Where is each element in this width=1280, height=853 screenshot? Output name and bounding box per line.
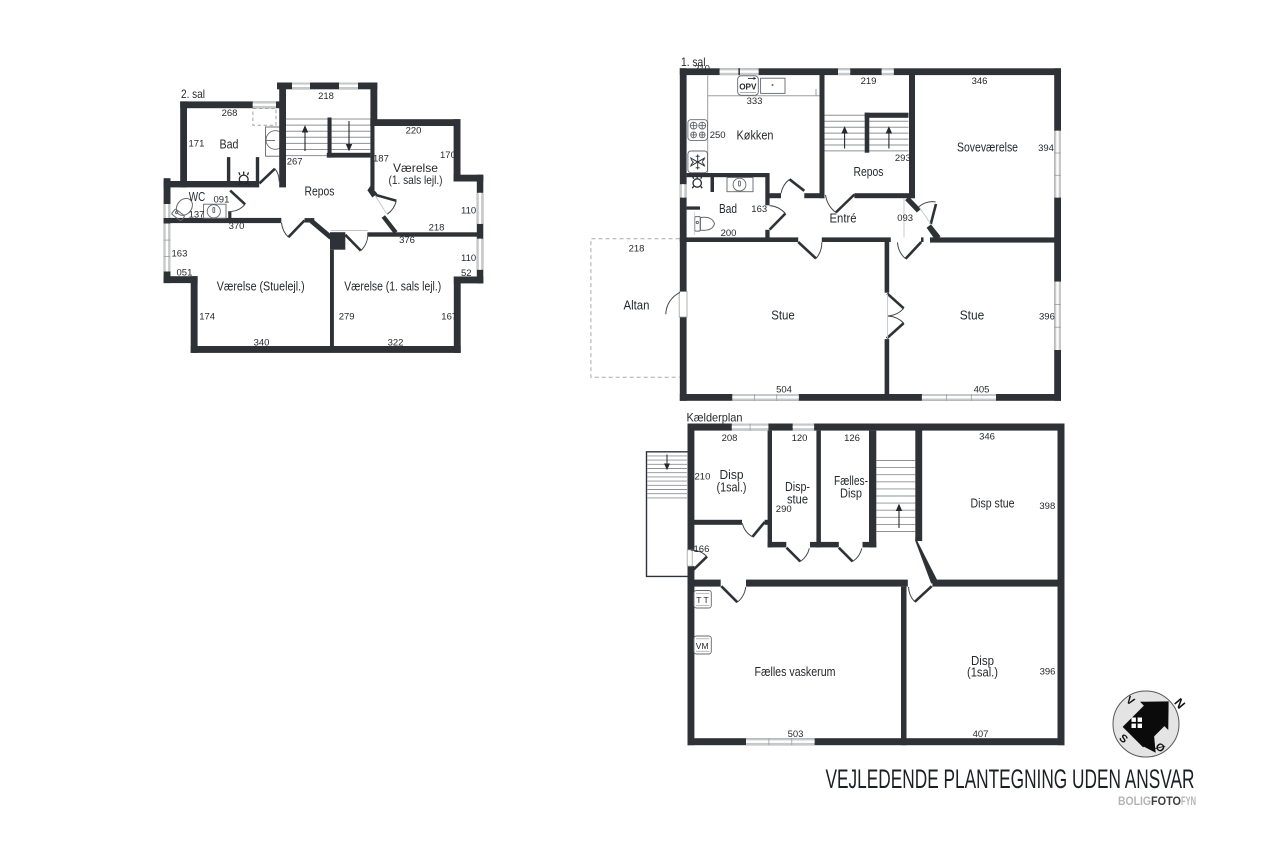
svg-text:346: 346	[979, 432, 995, 443]
svg-text:376: 376	[399, 235, 415, 246]
svg-text:051: 051	[177, 268, 193, 279]
svg-text:218: 218	[318, 91, 334, 102]
svg-text:346: 346	[972, 76, 988, 87]
svg-text:Kælderplan: Kælderplan	[687, 411, 743, 425]
svg-text:091: 091	[214, 195, 230, 206]
svg-text:340: 340	[254, 337, 270, 348]
svg-text:187: 187	[373, 153, 389, 164]
svg-text:Soveværelse: Soveværelse	[957, 140, 1018, 155]
svg-text:171: 171	[189, 139, 205, 150]
svg-text:Bad: Bad	[220, 137, 239, 152]
svg-text:2. sal: 2. sal	[181, 87, 205, 101]
svg-text:Repos: Repos	[854, 164, 884, 179]
svg-text:Disp: Disp	[840, 486, 862, 501]
svg-text:503: 503	[788, 729, 804, 740]
svg-text:322: 322	[388, 337, 404, 348]
svg-text:T T: T T	[696, 595, 708, 605]
svg-text:166: 166	[694, 544, 710, 555]
svg-text:163: 163	[172, 249, 188, 260]
svg-text:Fælles vaskerum: Fælles vaskerum	[755, 664, 836, 679]
svg-text:1. sal: 1. sal	[681, 55, 706, 69]
svg-text:407: 407	[973, 729, 989, 740]
svg-text:279: 279	[339, 311, 355, 322]
svg-text:293: 293	[895, 153, 911, 164]
svg-text:398: 398	[1039, 501, 1055, 512]
svg-text:219: 219	[861, 76, 877, 87]
svg-text:Stue: Stue	[960, 308, 985, 323]
svg-text:(1sal.): (1sal.)	[717, 480, 747, 495]
svg-text:Repos: Repos	[305, 184, 335, 199]
svg-text:Altan: Altan	[624, 298, 650, 313]
svg-text:170: 170	[440, 150, 456, 161]
svg-text:208: 208	[722, 433, 738, 444]
svg-text:220: 220	[406, 126, 422, 137]
svg-text:218: 218	[629, 244, 645, 255]
svg-text:Værelse (1. sals lejl.): Værelse (1. sals lejl.)	[344, 279, 441, 294]
svg-text:Køkken: Køkken	[737, 128, 774, 143]
svg-text:126: 126	[844, 433, 860, 444]
svg-text:290: 290	[776, 504, 792, 515]
svg-text:FYN: FYN	[1181, 794, 1196, 808]
svg-text:167: 167	[441, 311, 457, 322]
svg-text:504: 504	[776, 385, 792, 396]
svg-text:137: 137	[189, 210, 205, 221]
svg-text:WC: WC	[189, 189, 206, 204]
svg-text:210: 210	[695, 472, 711, 483]
svg-text:(1. sals lejl.): (1. sals lejl.)	[389, 173, 443, 187]
svg-text:120: 120	[792, 433, 808, 444]
svg-text:Entré: Entré	[830, 211, 857, 226]
svg-text:(1sal.): (1sal.)	[967, 665, 998, 680]
svg-text:Stue: Stue	[771, 308, 795, 323]
svg-text:Disp stue: Disp stue	[971, 496, 1015, 511]
svg-text:163: 163	[751, 204, 767, 215]
svg-text:110: 110	[461, 253, 476, 264]
svg-text:250: 250	[710, 130, 726, 141]
svg-text:396: 396	[1039, 312, 1055, 323]
svg-text:396: 396	[1040, 667, 1056, 678]
svg-text:Værelse (Stuelejl.): Værelse (Stuelejl.)	[217, 279, 305, 294]
svg-text:394: 394	[1038, 143, 1054, 154]
svg-text:267: 267	[287, 157, 303, 168]
svg-text:405: 405	[974, 385, 990, 396]
svg-text:110: 110	[461, 206, 476, 217]
svg-text:BOLIG: BOLIG	[1118, 794, 1151, 808]
svg-text:VM: VM	[696, 641, 709, 651]
svg-text:268: 268	[222, 108, 238, 119]
svg-text:52: 52	[461, 268, 472, 279]
svg-text:174: 174	[199, 311, 215, 322]
svg-text:333: 333	[747, 96, 763, 107]
svg-text:370: 370	[229, 221, 245, 232]
svg-text:OPV: OPV	[739, 83, 757, 92]
svg-text:VEJLEDENDE PLANTEGNING UDEN AN: VEJLEDENDE PLANTEGNING UDEN ANSVAR	[826, 764, 1195, 794]
svg-text:093: 093	[897, 213, 913, 224]
svg-text:200: 200	[721, 228, 737, 239]
svg-text:218: 218	[429, 222, 445, 233]
svg-text:Bad: Bad	[719, 201, 737, 216]
svg-text:FOTO: FOTO	[1151, 794, 1181, 808]
